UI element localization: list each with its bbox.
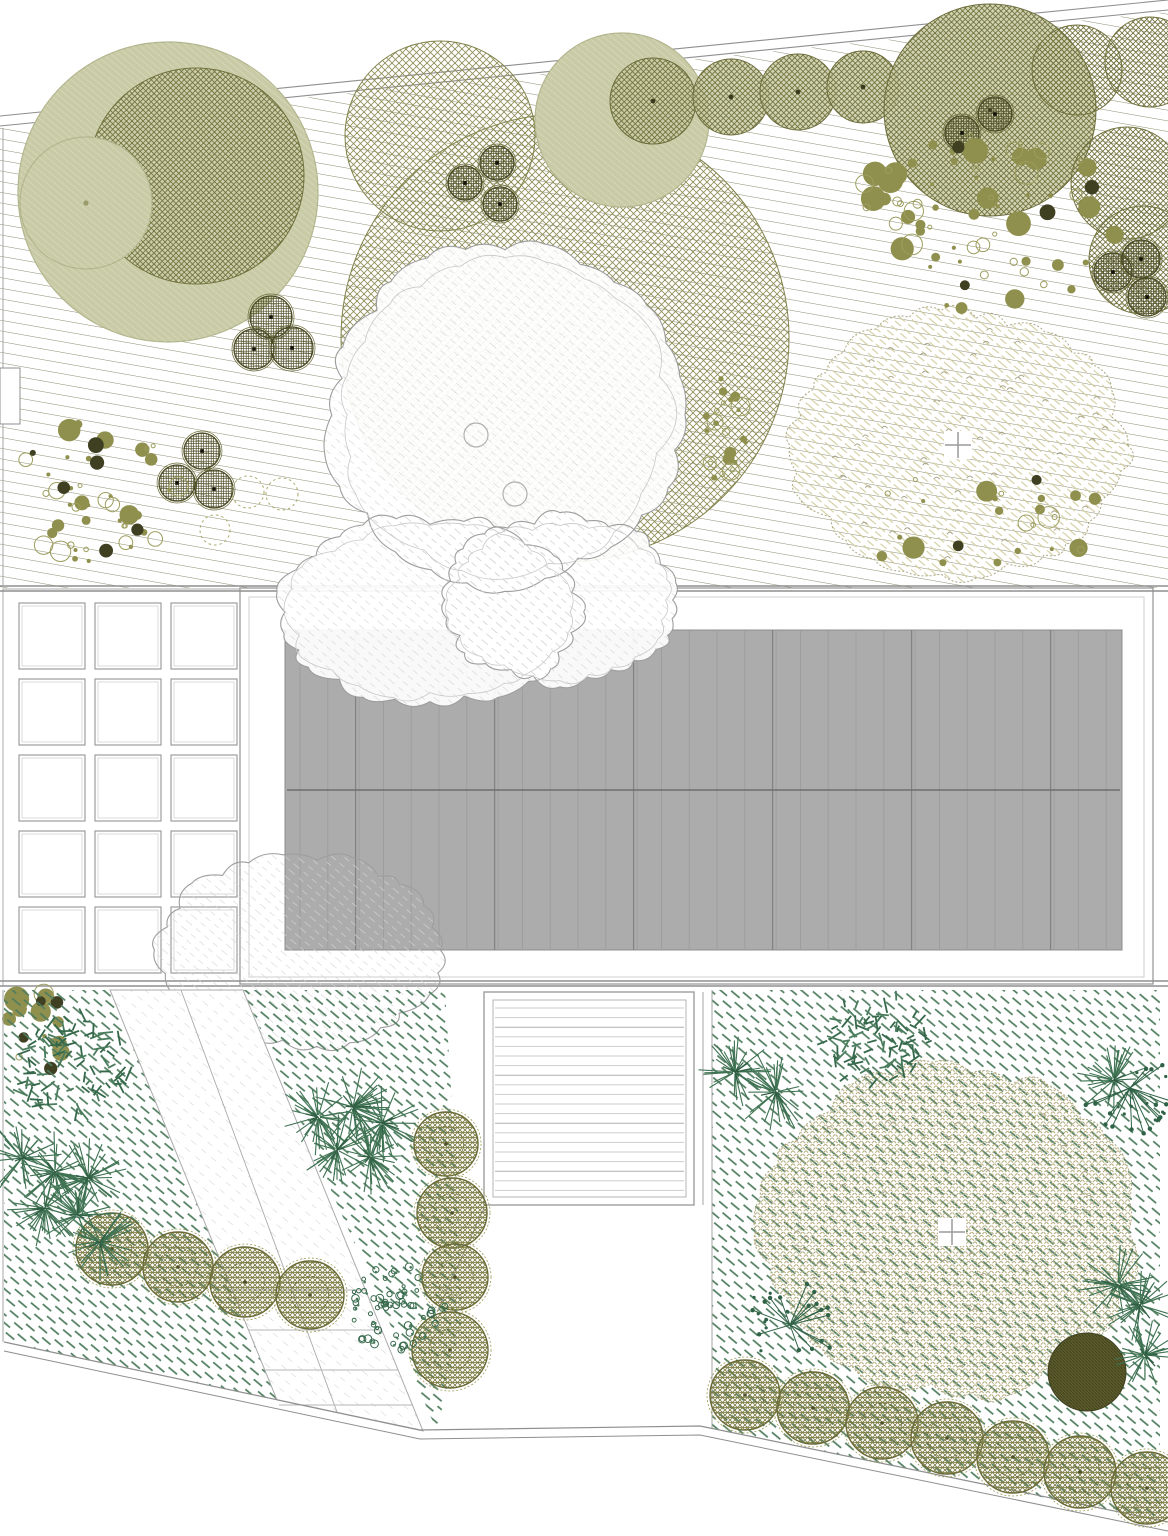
shrub-ball-symbol [414,1175,490,1251]
basket-tree-symbol [481,185,519,223]
shrub-ball-symbol [140,1229,216,1305]
hedge-tree-symbol [610,58,696,144]
basket-tree-symbol [157,463,197,503]
basket-tree-symbol [1126,276,1168,318]
garden-plan-sheet [0,0,1168,1536]
dark-evergreen-shrub [1048,1333,1126,1411]
basket-tree-symbol [269,325,315,371]
basket-tree-symbol [976,95,1014,133]
basket-tree-symbol [182,431,222,471]
basket-tree-symbol [478,144,516,182]
timber-deck [484,992,694,1205]
hedge-tree-symbol [760,54,836,130]
shrub-ball-symbol [707,1357,783,1433]
basket-tree-symbol [232,327,276,371]
shrub-ball-symbol [207,1244,283,1320]
basket-tree-symbol [193,468,235,510]
boundary-notch [0,368,20,424]
basket-tree-symbol [446,164,484,202]
sage-tree-symbol [20,137,152,269]
garden-plan-drawing [0,0,1168,1536]
hedge-tree-symbol [693,59,769,135]
basket-tree-symbol [1120,238,1162,280]
shrub-ball-symbol [419,1241,491,1313]
